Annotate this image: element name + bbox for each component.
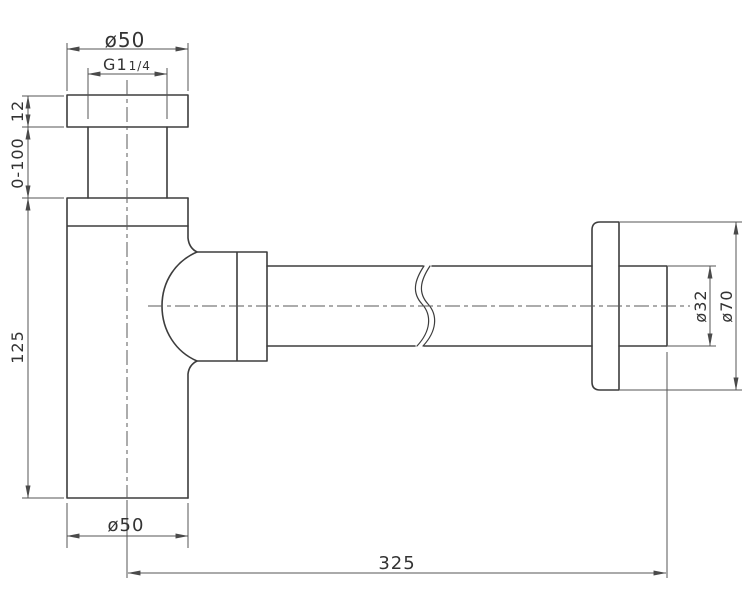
label-thread-fraction: 1/4 <box>129 59 151 73</box>
trap-cup-right-edge-with-bell <box>162 198 197 498</box>
label-flange-thickness: 12 <box>8 100 27 122</box>
trap-outline-group <box>67 95 667 498</box>
dimension-labels-group: ø50 G11/4 12 0-100 125 ø50 325 ø32 ø70 <box>8 28 736 574</box>
label-top-diameter: ø50 <box>105 28 146 52</box>
label-bottom-diameter: ø50 <box>108 515 145 536</box>
label-thread-main: G1 <box>103 55 128 74</box>
centerlines-group <box>127 80 690 498</box>
drawing-canvas: ø50 G11/4 12 0-100 125 ø50 325 ø32 ø70 <box>0 0 749 600</box>
label-pipe-diameter: ø32 <box>691 289 710 322</box>
ext-lines-length <box>127 352 667 578</box>
label-wall-flange-diameter: ø70 <box>717 289 736 322</box>
label-adjustable-range: 0-100 <box>8 137 27 189</box>
label-body-height: 125 <box>8 330 27 364</box>
bottle-trap-technical-drawing: ø50 G11/4 12 0-100 125 ø50 325 ø32 ø70 <box>0 0 749 600</box>
label-overall-length: 325 <box>378 553 415 574</box>
label-thread-size: G11/4 <box>103 55 151 74</box>
